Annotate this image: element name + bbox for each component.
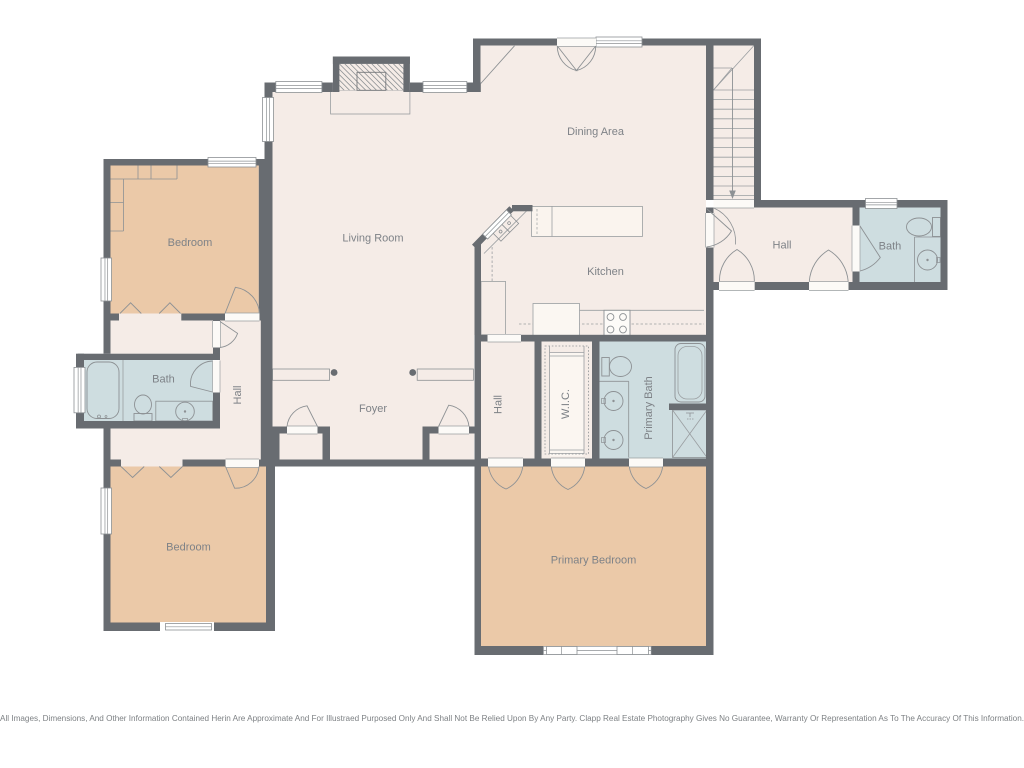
svg-text:Hall: Hall: [773, 240, 792, 252]
svg-text:Kitchen: Kitchen: [587, 266, 624, 278]
svg-text:Bedroom: Bedroom: [168, 237, 213, 249]
svg-text:Bath: Bath: [152, 374, 175, 386]
svg-text:Bedroom: Bedroom: [166, 542, 211, 554]
svg-text:Primary Bath: Primary Bath: [643, 376, 655, 440]
svg-text:All Images, Dimensions, And Ot: All Images, Dimensions, And Other Inform…: [0, 713, 1024, 723]
svg-text:Bath: Bath: [879, 241, 902, 253]
svg-text:W.I.C.: W.I.C.: [560, 389, 572, 419]
svg-text:Dining Area: Dining Area: [567, 126, 625, 138]
svg-text:Hall: Hall: [232, 386, 244, 405]
svg-text:Living Room: Living Room: [342, 233, 403, 245]
svg-text:Hall: Hall: [493, 395, 505, 414]
svg-text:Foyer: Foyer: [359, 403, 387, 415]
svg-text:Primary Bedroom: Primary Bedroom: [551, 555, 637, 567]
